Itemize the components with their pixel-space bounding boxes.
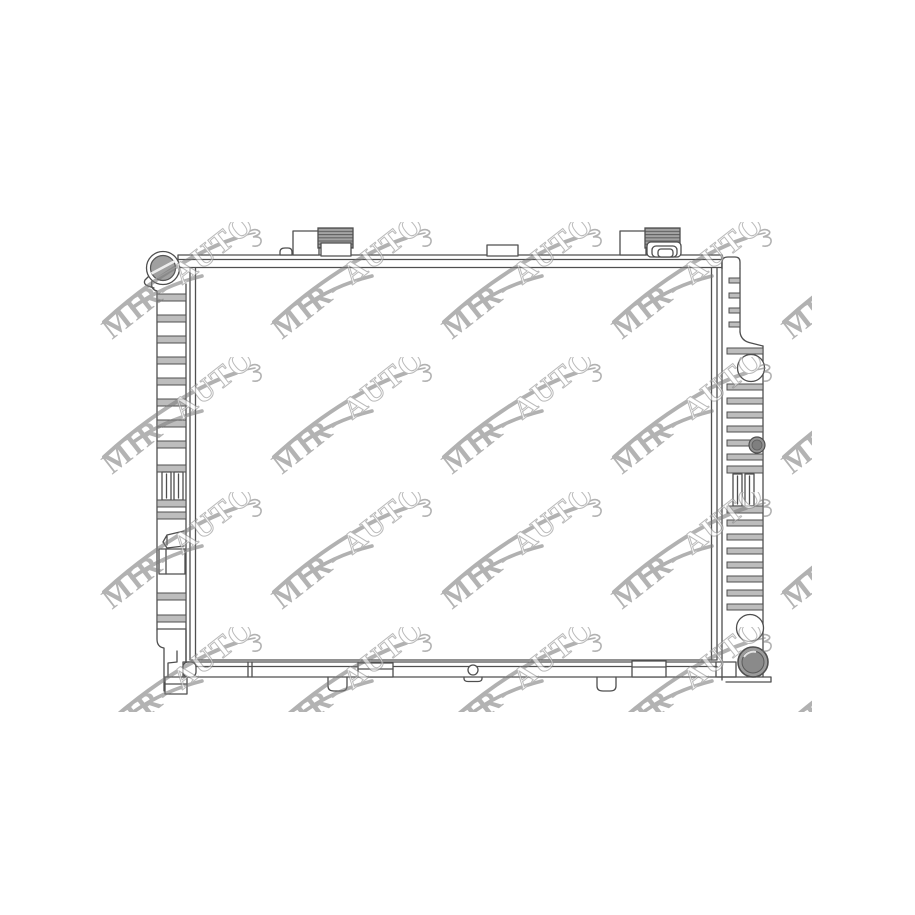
radiator-core [190,267,717,660]
top-center-tab [487,245,518,256]
radiator-technical-drawing [0,0,915,915]
left-tank-fins [152,281,186,662]
right-tank-fins [717,257,771,682]
filler-cap [144,252,179,289]
product-image: MIR- AUTO MIR- AUTO [0,0,915,915]
mounting-bracket-top-left [280,228,353,256]
mounting-bracket-top-right [620,228,681,257]
top-header-tank [178,255,722,268]
bottom-tank-bar [183,661,736,691]
